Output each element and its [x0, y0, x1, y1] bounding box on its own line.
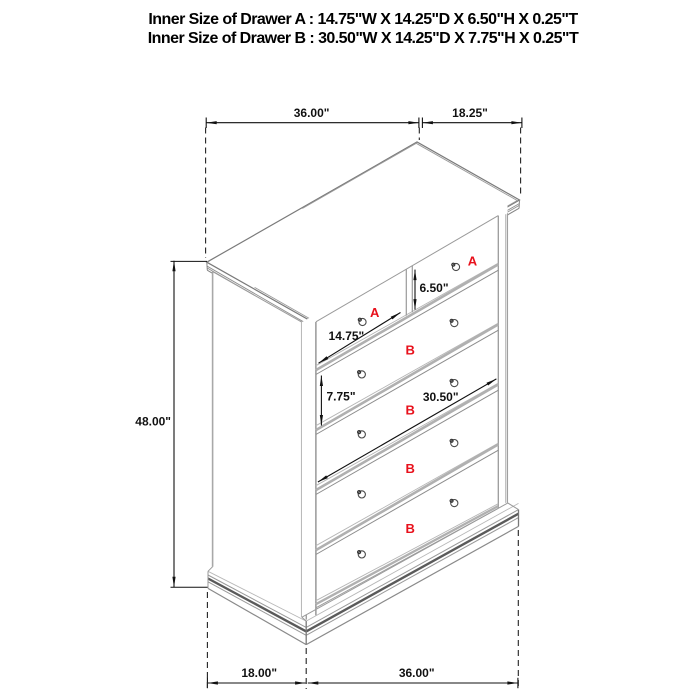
svg-text:36.00": 36.00" — [294, 106, 330, 120]
svg-text:B: B — [406, 403, 415, 418]
svg-text:B: B — [406, 461, 415, 476]
svg-text:6.50": 6.50" — [420, 281, 449, 295]
svg-text:14.75": 14.75" — [329, 329, 365, 343]
svg-text:18.00": 18.00" — [241, 666, 277, 680]
svg-text:B: B — [406, 521, 415, 536]
svg-text:B: B — [406, 343, 415, 358]
svg-text:36.00": 36.00" — [399, 666, 435, 680]
svg-text:A: A — [370, 305, 380, 320]
svg-text:A: A — [468, 254, 478, 269]
svg-text:18.25": 18.25" — [452, 106, 488, 120]
svg-text:30.50": 30.50" — [423, 390, 459, 404]
svg-text:48.00": 48.00" — [135, 415, 171, 429]
svg-text:7.75": 7.75" — [327, 390, 356, 404]
